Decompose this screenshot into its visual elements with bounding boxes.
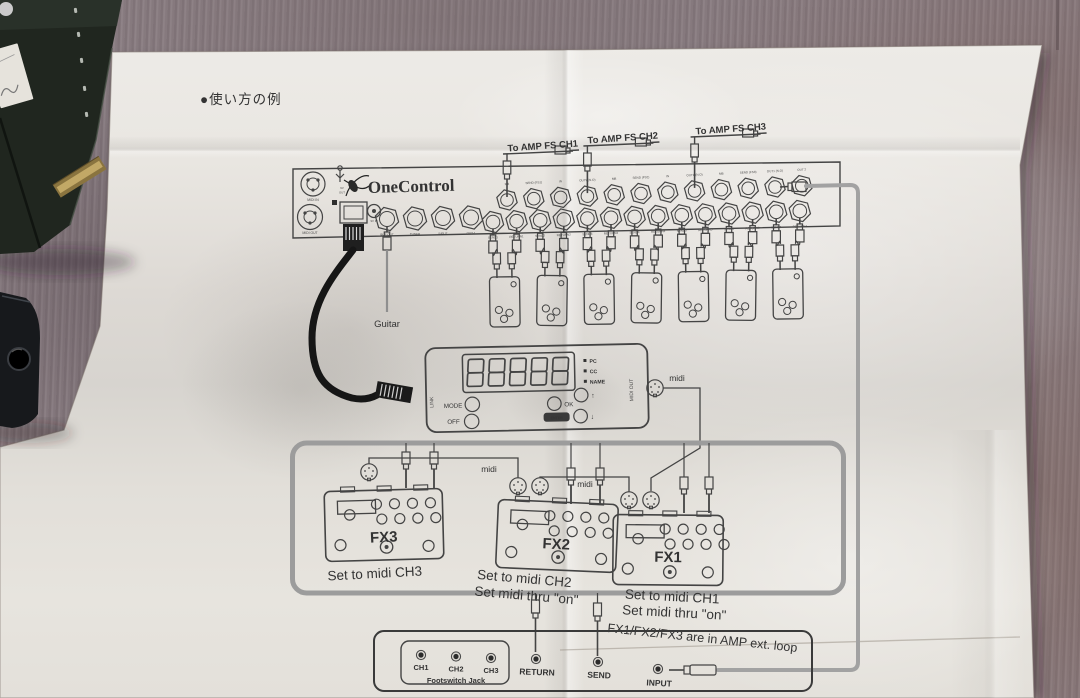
loop-jack-label: RETURN3 [604,231,619,236]
mode-button-label: MODE [444,403,463,410]
left-jack-label: TUNER [410,232,421,236]
din-pin [536,489,538,491]
loop-jack-label: SEND3 [582,232,593,237]
loop-jack-label: RETURN7 [793,224,808,229]
amp-ch2-label: CH2 [448,665,463,674]
fx3-name: FX3 [370,528,398,546]
din-pin [539,481,541,483]
midi-cable-label-1: midi [669,373,685,383]
loop-jack-label: SEND6 [724,227,735,232]
loop-jack-label: RETURN4 [651,229,666,234]
left-jack-label: OUT-1 [467,231,476,235]
black-pedal [0,292,73,443]
din-pin [517,481,519,483]
amp-jack-hole [533,656,538,661]
usage-example-heading: ●使い方の例 [200,91,282,107]
ok-button-label: OK [564,401,574,408]
loop-jack-label: RETURN5 [698,227,713,232]
fx-footswitch-dot [668,570,672,574]
din-pin [364,470,366,472]
unit-midi-in-label: MIDI IN [307,198,319,202]
unit-midi-out-label: MIDI OUT [302,231,317,235]
din-pin [650,386,652,388]
din-pin [372,470,374,472]
din-pin [631,503,633,505]
amp-ch3-label: CH3 [483,666,498,675]
loop-jack-label: RETURN2 [557,233,572,238]
scene: ●使い方の例 MIDI IN MIDI OUT 9V OUT [0,0,1080,698]
din-pin [514,489,516,491]
din-pin [513,484,515,486]
fs-plug-tip [570,150,579,151]
top-jack-label: SEND (FS3) [740,170,757,175]
fs-plug-tip [758,133,767,134]
down-arrow-icon: ↓ [591,414,595,421]
dc-jack-pin [372,209,376,213]
left-jack-label: INPUT [439,232,448,236]
din-pin [368,467,370,469]
din-pin [657,391,659,393]
din-pin [654,498,656,500]
power-switch [332,200,337,205]
din-pin [658,386,660,388]
pedal-jack-hole [8,348,30,370]
footswitch-jack-label: Footswitch Jack [427,676,486,685]
name-indicator-dot [584,380,587,383]
din-pin [625,503,627,505]
cc-indicator-dot [584,369,587,372]
amp-send-label: SEND [587,670,611,681]
top-jack-label: IN [666,174,669,178]
up-arrow-icon: ↑ [591,393,595,400]
midi-cable-label-2: midi [577,479,593,489]
top-jack-label: MB [612,177,617,181]
pc-indicator-dot [583,359,586,362]
brand-name: OneControl [368,176,455,197]
din-pin [646,498,648,500]
power-label-1: 9V [340,186,344,190]
guitar-label: Guitar [374,319,400,330]
loop-jack-label: SEND7 [771,225,782,230]
loop-jack-label: SEND5 [677,228,688,233]
top-jack-label: OUT 2 [797,167,806,171]
din-pin [654,383,656,385]
loop-jack-label: RETURN6 [745,226,760,231]
amp-jack-hole [453,654,458,659]
carpet-seam [1056,0,1059,50]
left-jack-label: BUF OUT [380,233,393,237]
controller-midi-out-label: MIDI OUT [629,379,635,402]
loop-jack-label: SEND1 [488,235,499,240]
cc-indicator-label: CC [590,369,598,375]
din-pin [651,391,653,393]
amp-return-label: RETURN [519,666,555,677]
top-jack-label: OUT1 (N.O) [767,169,783,174]
amp-input-label: INPUT [646,677,673,688]
amp-jack-hole [488,655,493,660]
amp-jack-hole [655,666,660,671]
loop-jack-label: SEND2 [535,234,546,239]
fx1-name: FX1 [654,549,682,566]
name-indicator-label: NAME [590,379,606,385]
din-pin [624,498,626,500]
top-jack-label: MB [719,171,724,175]
amp-ch1-label: CH1 [413,663,428,672]
top-jack-label: IN [559,179,562,183]
din-pin [650,495,652,497]
din-pin [632,498,634,500]
din-pin [543,484,545,486]
fs-plug-tip [650,142,659,143]
din-pin [521,484,523,486]
loop-jack-label: RETURN1 [509,234,524,239]
din-pin [535,484,537,486]
controller-link-label: LINK [429,396,435,408]
din-pin [520,489,522,491]
din-pin [371,475,373,477]
din-pin [653,503,655,505]
loop-jack-label: SEND4 [629,230,640,235]
fx2-name: FX2 [542,535,570,553]
enter-button-label: ENTER [551,416,564,420]
power-label-2: OUT [339,191,345,195]
midi-cable-label-3: midi [481,464,497,474]
amp-jack-hole [595,659,600,664]
off-button-label: OFF [447,419,460,426]
din-pin [542,489,544,491]
amp-jack-hole [418,652,423,657]
photo-of-instruction-sheet: { "photo": { "header_note": "●使い方の例", "i… [0,0,1080,698]
din-pin [365,475,367,477]
din-pin [647,503,649,505]
din-pin [628,495,630,497]
pc-indicator-label: PC [589,359,597,365]
